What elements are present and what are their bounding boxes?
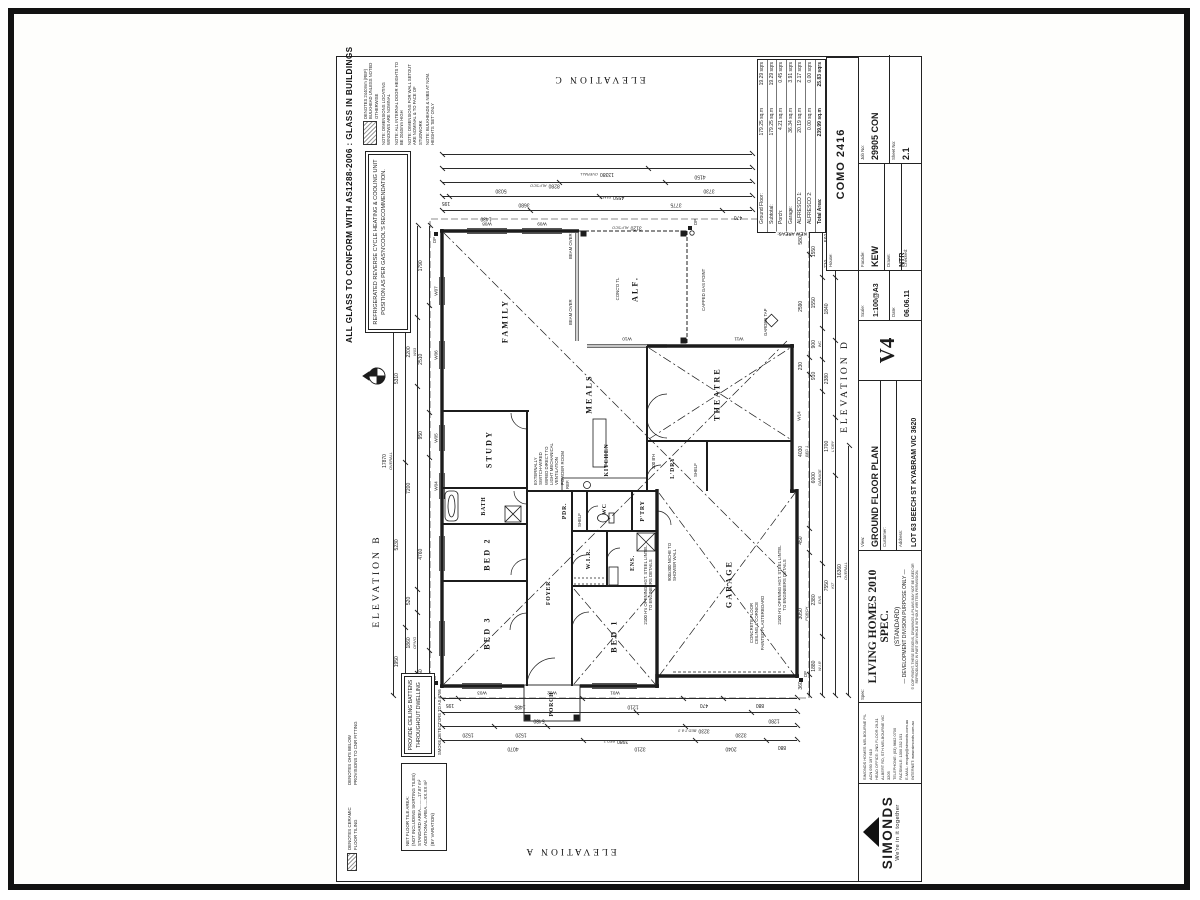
dim-row-top-a: 960476095025101790 <box>419 226 430 696</box>
dim-segment: 195 <box>442 196 450 207</box>
note-niche: 900x300 NICHE TO SHOWER WALL <box>667 529 678 581</box>
room-label-foyer: FOYER <box>546 581 552 605</box>
note-mech-vent: EXTERNALLY SWITCH-WIRED WIRED DIRECT TO … <box>533 439 565 485</box>
bulkhead-hatch-swatch <box>363 121 377 145</box>
dim-segment: 6000GARAGE <box>812 392 823 564</box>
scanned-floor-plan-page: { "notes_top": { "glass": "ALL GLASS TO … <box>0 0 1200 900</box>
dim-row-bottom-overall: 16360OVERALL <box>838 446 849 696</box>
dim-segment: 1430 <box>442 210 530 221</box>
legend-ohs-text: DENOTES OH'S BELOW PROVISIONS TO CNR FIT… <box>347 707 358 785</box>
dim-segment: 4150 <box>649 168 753 179</box>
sheetno-label: Sheet No: <box>891 58 896 160</box>
sheetno-value: 2.1 <box>901 147 911 160</box>
tiling-hatch-swatch <box>347 853 357 871</box>
room-label-alfresco: ALF. <box>631 276 640 302</box>
address-cell: Address: LOT 63 BEECH ST KYABRAM VIC 362… <box>897 381 919 550</box>
area-sqm: 36.34 sq.m <box>787 108 796 166</box>
dim-segment: 13380OVERALL <box>442 154 752 165</box>
room-label-wir: W.I.R. <box>586 549 592 570</box>
area-label: Garage: <box>787 166 796 224</box>
area-label: Porch: <box>777 166 786 224</box>
ceiling-battens-notebox: PROVIDE CEILING BATTENS THROUGHOUT DWELL… <box>401 673 435 757</box>
tile-area-var: (BY VARIATION) <box>430 768 436 846</box>
dim-col-left-c: 152015203980BED 33230 <box>442 726 797 737</box>
areas-table-title: KEW AREAS: <box>775 232 808 237</box>
area-row-porch: Porch: 4.21 sq.m 0.45 sqrs <box>777 60 787 232</box>
dim-segment: 5230 <box>395 462 406 627</box>
dim-segment: 950 <box>419 413 430 458</box>
dim-segment: 4070 <box>442 740 584 751</box>
job-value: 29905 CON <box>870 112 880 160</box>
area-label: Subtotal: <box>768 166 777 224</box>
note-garage-opening-2: 2100 H's OPENING HGT. STEEL LINTEL TO EN… <box>643 545 654 625</box>
dim-segment: 1880W.I.R <box>812 636 823 696</box>
spec-division: — DEVELOPMENT DIVISION PURPOSE ONLY — <box>902 553 908 700</box>
gas-point-marker <box>690 231 694 235</box>
dim-segment: 16360OVERALL <box>838 446 849 696</box>
date-cell: Date: 06.06.11 <box>890 271 921 320</box>
note-garage-finish: CONCRETE FLOOR CEILING & CORNICE PAINTED… <box>749 594 765 652</box>
room-label-garage: GARAGE <box>725 560 734 608</box>
room-label-bed2: BED 2 <box>483 537 492 570</box>
area-sqrs: 0.45 sqrs <box>777 62 786 108</box>
simonds-tagline: We're in it together <box>895 784 901 881</box>
room-label-bed3: BED 3 <box>483 616 492 649</box>
dim-col-right-a: 14303120ALF'SCO470 <box>442 210 752 221</box>
dim-segment: 230 <box>799 358 810 375</box>
dim-segment: 195 <box>442 698 458 709</box>
window-label-w05: W05 <box>434 433 439 442</box>
elevation-c-label: ELEVATION C <box>552 74 645 84</box>
window-label-w04: W04 <box>434 481 439 490</box>
dim-segment: 2590 <box>799 255 810 358</box>
area-sqm: 20.19 sq.m <box>796 108 805 166</box>
note-shelf-2: SHELF <box>577 513 582 527</box>
area-sqrs: 3.91 sqrs <box>787 62 796 108</box>
job-label: Job No: <box>860 58 865 160</box>
note-beam-over-1: BEAM OVER <box>568 299 573 325</box>
checked-label: Checked: <box>903 167 908 267</box>
legend-ceramic-tiling: DENOTES CERAMIC FLOOR TILING <box>347 791 358 871</box>
copyright-note: © COPYRIGHT. THESE DESIGNS, DRAWINGS & P… <box>911 553 919 700</box>
dim-segment: 8280ALF'SCO <box>442 168 649 179</box>
drawn-cell: Drawn: NTR <box>885 164 902 270</box>
dim-row-bottom-a: 3603050PORCH4504030BED 12302590580 <box>799 226 810 696</box>
area-sqrs: 19.29 sqrs <box>768 62 777 108</box>
dim-segment: 1790 <box>419 226 430 306</box>
room-label-bath: BATH <box>481 496 487 515</box>
area-row-alfresco1: ALFRESCO 1: 20.19 sq.m 2.17 sqrs <box>796 60 806 232</box>
window-label-w06: W06 <box>434 350 439 359</box>
note-garage-opening-1: 2100 H's OPENING HGT. STEEL LINTEL TO EN… <box>777 545 788 625</box>
facade-cell: Facade: KEW <box>859 164 885 270</box>
area-label: Total Area: <box>816 166 825 224</box>
spec-label: Spec: <box>860 553 865 700</box>
area-row-alfresco2: ALFRESCO 2: 0.00 sq.m 0.00 sqrs <box>806 60 816 232</box>
dim-segment: 1520 <box>442 726 495 737</box>
window-label-w02: W02 <box>547 691 556 696</box>
dim-segment: 3120ALF'SCO <box>530 210 723 221</box>
window-label-w01: W01 <box>610 691 619 696</box>
dim-col-right-c: 50304550FAM'Y3730 <box>442 182 752 193</box>
checked-cell: Checked: <box>902 164 919 270</box>
date-value: 06.06.11 <box>904 290 911 317</box>
facade-drawn-checked-cell: Facade: KEW Drawn: NTR Checked: <box>859 164 921 271</box>
sheetno-cell: Sheet No: 2.1 <box>890 55 921 163</box>
note-bulkheads-nom: NOTE: BULKHEADS & NIBS AT NOM. HEIGHTS '… <box>425 61 436 145</box>
dim-segment: 520 <box>407 590 418 612</box>
area-row-subtotal: Subtotal: 179.25 sq.m 19.29 sqrs <box>768 60 778 232</box>
customer-cell: Customer: <box>881 381 897 550</box>
window-label-w10: W10 <box>622 337 631 342</box>
dim-row-bottom-b: 1880W.I.R2380ENS6000GARAGE910900WC155015… <box>812 226 823 696</box>
dim-segment: 3210 <box>584 740 696 751</box>
simonds-roof-icon <box>863 818 879 848</box>
dim-segment: 910 <box>812 360 823 392</box>
area-sqrs: 0.00 sqrs <box>806 62 815 108</box>
job-sheet-cell: Job No: 29905 CON Sheet No: 2.1 <box>859 55 921 164</box>
legend-ohs: DENOTES OH'S BELOW PROVISIONS TO CNR FIT… <box>347 707 358 785</box>
dim-segment: 1700L'DRY <box>825 417 836 475</box>
dim-col-left-b: 54803230BED 2 & 31280 <box>442 712 797 723</box>
note-windows-nominal: NOTE: DIMENSIONS LOCATING WINDOWS ARE NO… <box>381 61 392 145</box>
job-cell: Job No: 29905 CON <box>859 55 890 163</box>
spec-name: LIVING HOMES 2010 SPEC. <box>867 553 891 700</box>
dim-segment: 880 <box>766 740 797 751</box>
area-row-total: Total Area: 239.99 sq.m 25.83 sqrs <box>816 60 825 232</box>
dim-segment: 1485 <box>458 698 582 709</box>
dim-segment: 470 <box>684 698 723 709</box>
dim-segment: 2380ENS <box>812 564 823 637</box>
contact-cell: SIMONDS HOMES MELBOURNE P/L ACN 050 197 … <box>859 703 921 784</box>
simonds-logo-cell: SIMONDS We're in it together <box>859 784 921 881</box>
area-sqm: 179.25 sq.m <box>768 108 777 166</box>
dim-segment: 1280 <box>752 712 797 723</box>
room-label-pdr: PDR. <box>562 503 568 520</box>
scan-border-frame: BED 3 BED 2 BATH STUDY FAMILY MEALS THEA… <box>8 8 1190 890</box>
version-value: V4 <box>859 321 915 380</box>
view-customer-address-cell: View: GROUND FLOOR PLAN Customer: Addres… <box>859 381 921 551</box>
note-bulkhead-legend: DENOTES 2440mm (REF) BULKHEAD UNLESS NOT… <box>363 61 379 119</box>
area-label: Ground Floor: <box>758 166 767 224</box>
house-name-cell: House: COMO 2416 <box>826 57 858 271</box>
window-label-w07: W07 <box>434 286 439 295</box>
roof-lines <box>444 233 795 684</box>
dim-segment: 470 <box>723 210 752 221</box>
scale-value: 1:100@A3 <box>873 283 880 317</box>
room-label-study: STUDY <box>485 430 494 468</box>
dim-segment: 2510 <box>419 306 430 413</box>
dim-segment: 450 <box>799 528 810 552</box>
smoke-detectors-note: SMOKE DETECTORS TO AS 3786 <box>437 671 442 755</box>
dim-segment: 1520 <box>495 726 548 737</box>
address-value: LOT 63 BEECH ST KYABRAM VIC 3620 <box>911 418 918 547</box>
drawn-label: Drawn: <box>886 167 891 267</box>
dim-segment: 3230 <box>685 726 797 737</box>
dim-segment: 3730 <box>665 182 752 193</box>
note-conc-tl: CONC'D TL <box>615 278 620 301</box>
areas-table: KEW AREAS: Ground Floor: 179.25 sq.m 19.… <box>757 59 826 233</box>
note-wall-setout: NOTE: DIMENSIONS FOR WALL SETOUT ARE NOM… <box>407 61 423 145</box>
area-row-garage: Garage: 36.34 sq.m 3.91 sqrs <box>787 60 797 232</box>
dim-segment: 2380 <box>825 340 836 417</box>
note-door-heights: NOTE: ALL INTERNAL DOOR HEIGHTS TO BE 20… <box>394 61 405 145</box>
room-label-family: FAMILY <box>501 299 510 343</box>
title-block: SIMONDS We're in it together SIMONDS HOM… <box>858 57 921 881</box>
facade-label: Facade: <box>860 167 865 267</box>
room-label-kitchen: KITCHEN <box>604 444 610 477</box>
window-label-w08: W08 <box>482 222 491 227</box>
dim-segment: 1550 <box>812 277 823 328</box>
area-sqm: 239.99 sq.m <box>816 108 825 166</box>
window-label-w03: W03 <box>477 691 486 696</box>
dim-segment: 360 <box>799 675 810 696</box>
house-name: COMO 2416 <box>835 61 847 267</box>
contact-line-web: INTERNET: www.simonds.com.au <box>910 706 916 780</box>
drawing-sheet-natural: BED 3 BED 2 BATH STUDY FAMILY MEALS THEA… <box>336 56 922 882</box>
house-label: House: <box>828 61 833 267</box>
window-label-w11: W11 <box>734 337 743 342</box>
room-label-ptry: P'TRY <box>640 500 646 521</box>
room-label-bed1: BED 1 <box>610 619 619 652</box>
spec-cell: Spec: LIVING HOMES 2010 SPEC. (STANDARD)… <box>859 551 921 703</box>
dim-segment: 5480 <box>442 712 637 723</box>
tile-area-notebox: NET FLOOR TILE AREA: (NOT INCLUDING SKIR… <box>401 763 447 851</box>
room-label-meals: MEALS <box>585 374 594 413</box>
scale-label: Scale: <box>860 274 865 317</box>
room-label-wc: WC <box>602 503 608 515</box>
dim-segment: 3230BED 2 & 3 <box>637 712 752 723</box>
dim-segment: 4550FAM'Y <box>559 182 665 193</box>
dim-segment: 2040 <box>695 740 766 751</box>
dim-segment: 880 <box>723 698 797 709</box>
facade-value: KEW <box>870 246 880 267</box>
dim-segment: 7550KIT <box>825 475 836 696</box>
scale-date-cell: Scale: 1:100@A3 Date: 06.06.11 <box>859 271 921 321</box>
area-label: ALFRESCO 1: <box>796 166 805 224</box>
drawing-sheet: BED 3 BED 2 BATH STUDY FAMILY MEALS THEA… <box>336 56 922 882</box>
dim-col-left-d: 407032102040880 <box>442 740 797 751</box>
area-sqm: 179.25 sq.m <box>758 108 767 166</box>
battens-line2: THROUGHOUT DWELLING <box>416 679 424 751</box>
dim-segment: 1210 <box>583 698 684 709</box>
note-beam-over-2: BEAM OVER <box>568 233 573 259</box>
dim-segment: 3680 <box>450 196 599 207</box>
area-sqm: 4.21 sq.m <box>777 108 786 166</box>
view-value: GROUND FLOOR PLAN <box>870 446 880 547</box>
contact-line-company: SIMONDS HOMES MELBOURNE P/L ACN 050 197 … <box>862 706 874 780</box>
view-label: View: <box>860 384 865 547</box>
dim-segment: 4030BED 1 <box>799 374 810 528</box>
dim-segment: 3980BED 3 <box>547 726 685 737</box>
dim-segment: 1860OPN'G <box>407 612 418 674</box>
area-row-ground-floor: Ground Floor: 179.25 sq.m 19.29 sqrs <box>758 60 768 232</box>
date-label: Date: <box>891 274 896 317</box>
note-garden-tap: GARDEN TAP <box>763 308 768 336</box>
room-label-ldry: L'DRY <box>670 457 676 479</box>
note-ref: REF. <box>565 480 570 489</box>
dim-col-right-overall: 13380OVERALL <box>442 154 752 165</box>
area-sqm: 0.00 sq.m <box>806 108 815 166</box>
dim-col-left-a: 19514851210470880 <box>442 698 797 709</box>
customer-label: Customer: <box>882 384 887 547</box>
legend-ceramic-tiling-text: DENOTES CERAMIC FLOOR TILING <box>347 791 358 850</box>
dim-segment: 1550 <box>812 226 823 277</box>
tile-area-add: ADDITIONAL AREA......XX.XX m² <box>423 768 429 846</box>
dim-segment: 4760 <box>419 458 430 651</box>
version-cell: V4 <box>859 321 921 381</box>
note-shelf-1: SHELF <box>693 463 698 477</box>
note-capped-gas: CAPPED GAS POINT <box>701 251 706 311</box>
elevation-a-label: ELEVATION A <box>523 846 616 856</box>
refrigerated-unit-notebox: REFRIGERATED REVERSE CYCLE HEATING & COO… <box>365 151 411 333</box>
note-dp-2: DP <box>432 237 437 243</box>
scale-cell: Scale: 1:100@A3 <box>859 271 890 320</box>
dim-segment: 3050PORCH <box>799 553 810 675</box>
room-label-theatre: THEATRE <box>713 367 722 421</box>
north-arrow-icon <box>363 368 385 384</box>
battens-line1: PROVIDE CEILING BATTENS <box>408 679 416 751</box>
room-label-ens: ENS. <box>630 555 636 571</box>
window-label-w09: W09 <box>537 222 546 227</box>
view-cell: View: GROUND FLOOR PLAN <box>859 381 881 550</box>
area-sqrs: 25.83 sqrs <box>816 62 825 108</box>
dim-col-right-b: 19536803775 <box>442 196 752 207</box>
area-sqrs: 2.17 sqrs <box>796 62 805 108</box>
glass-conformance-note: ALL GLASS TO CONFORM WITH AS1288-2006 : … <box>345 47 354 343</box>
simonds-logo-text: SIMONDS <box>880 784 895 881</box>
address-label: Address: <box>898 384 903 547</box>
elevation-b-label: ELEVATION B <box>372 534 382 627</box>
dim-segment: 7200 <box>407 387 418 590</box>
spec-standard: (STANDARD) <box>894 553 901 700</box>
dim-segment: 900WC <box>812 328 823 360</box>
elevation-d-label: ELEVATION D <box>840 339 850 433</box>
dim-segment: 1840 <box>825 278 836 340</box>
area-label: ALFRESCO 2: <box>806 166 815 224</box>
note-300bh: 300 B'H <box>651 454 656 469</box>
contact-line-office: HEAD OFFICE: 2ND FLOOR 29-31 ALBERT RD, … <box>874 706 892 780</box>
area-sqrs: 19.29 sqrs <box>758 62 767 108</box>
dim-row-bottom-c: 7550KIT1700L'DRY23801840710560REF <box>825 226 836 696</box>
